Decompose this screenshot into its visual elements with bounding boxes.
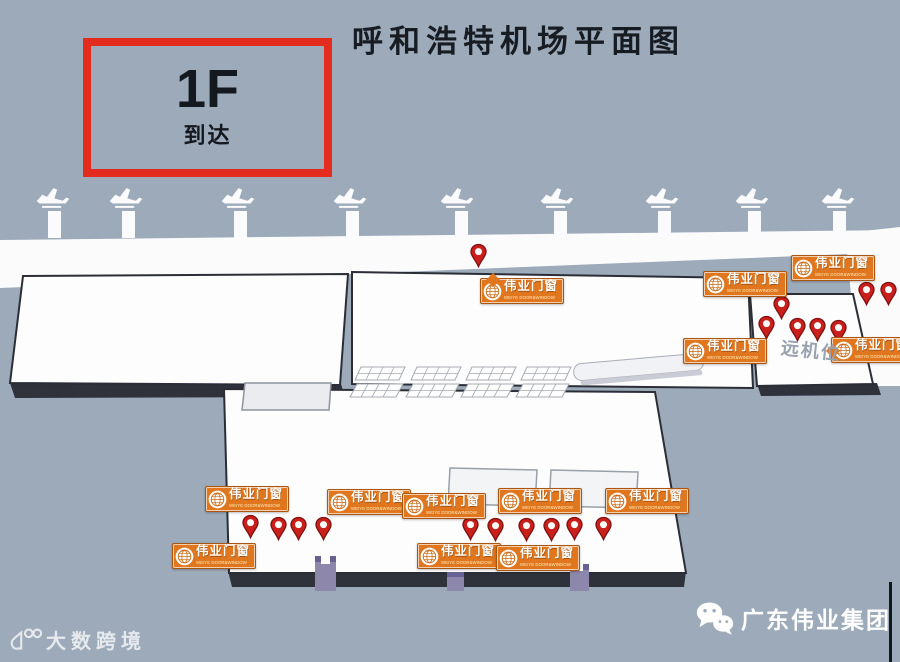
banner-brand-cn: 伟业门窗 (707, 340, 764, 353)
location-pin (879, 281, 898, 307)
location-pin (461, 516, 480, 542)
globe-logo-icon (608, 492, 627, 511)
banner-brand-cn: 伟业门窗 (855, 339, 900, 352)
airplane-icon (642, 184, 682, 210)
airplane-icon (437, 184, 477, 210)
globe-logo-icon (499, 549, 518, 568)
globe-logo-icon (794, 259, 813, 278)
globe-logo-icon (686, 342, 705, 361)
banner-brand-cn: 伟业门窗 (629, 490, 686, 503)
banner-brand-en: WEIYE DOOR&WINDOW (855, 355, 900, 359)
jet-bridge (48, 211, 61, 238)
brand-banner: 伟业门窗WEIYE DOOR&WINDOW (498, 488, 582, 514)
banner-brand-en: WEIYE DOOR&WINDOW (351, 507, 408, 511)
airplane-icon (818, 184, 858, 210)
globe-logo-icon (208, 490, 227, 509)
globe-logo-icon (405, 497, 424, 516)
watermark-logo-icon (8, 624, 42, 654)
brand-banner: 伟业门窗WEIYE DOOR&WINDOW (205, 486, 289, 512)
jet-bridge (748, 211, 761, 238)
airplane-icon (33, 184, 73, 210)
location-pin (486, 517, 505, 543)
location-pin (594, 516, 613, 542)
brand-banner: 伟业门窗WEIYE DOOR&WINDOW (480, 278, 564, 304)
banner-brand-cn: 伟业门窗 (426, 495, 483, 508)
banner-brand-en: WEIYE DOOR&WINDOW (196, 561, 253, 565)
footer-brand-text: 广东伟业集团 (741, 601, 891, 635)
footer-divider (889, 582, 892, 662)
banner-brand-cn: 伟业门窗 (815, 257, 872, 270)
location-pin (857, 281, 876, 307)
globe-logo-icon (175, 547, 194, 566)
brand-banner: 伟业门窗WEIYE DOOR&WINDOW (172, 543, 256, 569)
banner-brand-cn: 伟业门窗 (229, 488, 286, 501)
location-pin (469, 243, 488, 269)
banner-brand-cn: 伟业门窗 (196, 545, 253, 558)
banner-brand-cn: 伟业门窗 (520, 547, 577, 560)
airplane-icon (732, 184, 772, 210)
banner-brand-en: WEIYE DOOR&WINDOW (707, 356, 764, 360)
banner-brand-en: WEIYE DOOR&WINDOW (522, 506, 579, 510)
banner-brand-en: WEIYE DOOR&WINDOW (504, 296, 561, 300)
jet-bridge (833, 211, 846, 238)
airplane-icon (106, 184, 146, 210)
location-pin (565, 516, 584, 542)
page-title: 呼和浩特机场平面图 (352, 16, 685, 61)
watermark-text: 大数跨境 (46, 625, 146, 654)
jet-bridge (346, 211, 359, 238)
banner-brand-en: WEIYE DOOR&WINDOW (426, 511, 483, 515)
location-pin (517, 517, 536, 543)
jet-bridge (658, 211, 671, 238)
floor-badge: 1F 到达 (83, 38, 332, 177)
brand-banner: 伟业门窗WEIYE DOOR&WINDOW (605, 488, 689, 514)
banner-brand-en: WEIYE DOOR&WINDOW (727, 289, 784, 293)
banner-brand-en: WEIYE DOOR&WINDOW (441, 561, 498, 565)
banner-brand-cn: 伟业门窗 (504, 280, 561, 293)
banner-brand-cn: 伟业门窗 (441, 545, 498, 558)
brand-banner: 伟业门窗WEIYE DOOR&WINDOW (703, 271, 787, 297)
floor-number: 1F (91, 62, 324, 116)
banner-brand-cn: 伟业门窗 (351, 491, 408, 504)
globe-logo-icon (706, 275, 725, 294)
globe-logo-icon (330, 493, 349, 512)
brand-banner: 伟业门窗WEIYE DOOR&WINDOW (402, 493, 486, 519)
location-pin (269, 516, 288, 542)
brand-banner: 伟业门窗WEIYE DOOR&WINDOW (683, 338, 767, 364)
watermark: 大数跨境 (8, 624, 146, 654)
floor-label: 到达 (91, 118, 324, 150)
banner-brand-en: WEIYE DOOR&WINDOW (520, 563, 577, 567)
globe-logo-icon (501, 492, 520, 511)
airplane-icon (218, 184, 258, 210)
jet-bridge (122, 211, 135, 238)
location-pin (542, 517, 561, 543)
footer-brand: 广东伟业集团 (695, 600, 891, 636)
airport-floorplan: WEIYE (0, 0, 900, 662)
banner-brand-cn: 伟业门窗 (727, 273, 784, 286)
globe-logo-icon (420, 547, 439, 566)
brand-banner: 伟业门窗WEIYE DOOR&WINDOW (496, 545, 580, 571)
banner-brand-en: WEIYE DOOR&WINDOW (229, 504, 286, 508)
airplane-icon (330, 184, 370, 210)
jet-bridge (455, 211, 468, 238)
brand-banner: 伟业门窗WEIYE DOOR&WINDOW (417, 543, 501, 569)
location-pin (241, 514, 260, 540)
banner-brand-en: WEIYE DOOR&WINDOW (629, 506, 686, 510)
jet-bridge (234, 211, 247, 238)
jet-bridge (554, 211, 567, 238)
banner-brand-en: WEIYE DOOR&WINDOW (815, 273, 872, 277)
airplane-icon (537, 184, 577, 210)
wechat-icon (695, 600, 735, 636)
brand-banner: 伟业门窗WEIYE DOOR&WINDOW (327, 489, 411, 515)
location-pin (289, 516, 308, 542)
banner-brand-cn: 伟业门窗 (522, 490, 579, 503)
location-pin (314, 516, 333, 542)
brand-banner: 伟业门窗WEIYE DOOR&WINDOW (791, 255, 875, 281)
